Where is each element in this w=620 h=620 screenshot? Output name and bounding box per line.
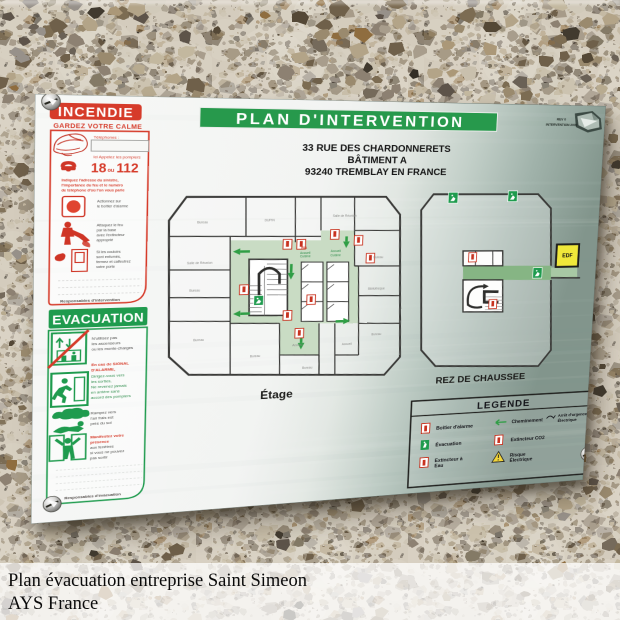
svg-text:GARDEZ VOTRE CALME: GARDEZ VOTRE CALME	[53, 123, 142, 131]
svg-text:Accueil: Accueil	[292, 344, 303, 348]
svg-text:33 RUE DES CHARDONNERETS: 33 RUE DES CHARDONNERETS	[302, 143, 451, 155]
svg-text:de téléphone d'où l'on vous pa: de téléphone d'où l'on vous parle	[61, 188, 125, 193]
svg-text:Bureau: Bureau	[189, 289, 200, 293]
svg-text:PLAN D'INTERVENTION: PLAN D'INTERVENTION	[236, 110, 465, 131]
svg-text:Bibliothèque: Bibliothèque	[368, 287, 385, 291]
svg-text:RIA: RIA	[301, 246, 307, 250]
svg-text:Cuisine: Cuisine	[330, 254, 341, 258]
svg-text:Cuisine: Cuisine	[300, 255, 311, 259]
svg-text:112: 112	[116, 161, 139, 176]
svg-text:Bureau: Bureau	[250, 354, 261, 358]
svg-text:Bureau: Bureau	[302, 366, 312, 370]
svg-text:l'importance du feu et le numé: l'importance du feu et le numéro	[61, 183, 123, 188]
svg-text:Ici Appelez les pompiers: Ici Appelez les pompiers	[93, 155, 141, 160]
svg-text:Salle de Réunion: Salle de Réunion	[187, 261, 213, 265]
svg-text:Indiquez l'adresse du sinistre: Indiquez l'adresse du sinistre,	[61, 178, 118, 183]
svg-text:ou: ou	[107, 168, 114, 173]
svg-text:BÂTIMENT A: BÂTIMENT A	[347, 154, 407, 165]
svg-text:REV 0: REV 0	[557, 117, 567, 121]
svg-text:93240 TREMBLAY EN FRANCE: 93240 TREMBLAY EN FRANCE	[305, 167, 447, 178]
svg-text:18: 18	[91, 160, 107, 175]
svg-text:Salle de Réunion: Salle de Réunion	[333, 214, 357, 218]
svg-text:Attaquez le feu: Attaquez le feu	[97, 223, 123, 228]
svg-text:le boîtier d'alarme: le boîtier d'alarme	[97, 204, 129, 209]
svg-text:Bureau: Bureau	[373, 256, 383, 260]
svg-text:Accueil: Accueil	[342, 342, 352, 346]
svg-text:DUPIN: DUPIN	[265, 219, 276, 223]
svg-text:approprié: approprié	[96, 237, 114, 242]
svg-text:Bureau: Bureau	[193, 338, 204, 342]
svg-text:EDF: EDF	[562, 253, 573, 259]
svg-text:INTERVENTION 2000: INTERVENTION 2000	[546, 122, 578, 127]
svg-text:Eau: Eau	[434, 464, 444, 469]
svg-text:Actionnez sur: Actionnez sur	[97, 199, 122, 204]
svg-text:Étage: Étage	[260, 388, 293, 402]
svg-text:Bureau: Bureau	[197, 221, 208, 225]
svg-text:votre porte: votre porte	[96, 264, 116, 269]
svg-text:Téléphones :: Téléphones :	[94, 135, 120, 140]
svg-text:Bureau: Bureau	[371, 333, 381, 337]
svg-text:INCENDIE: INCENDIE	[58, 104, 134, 120]
